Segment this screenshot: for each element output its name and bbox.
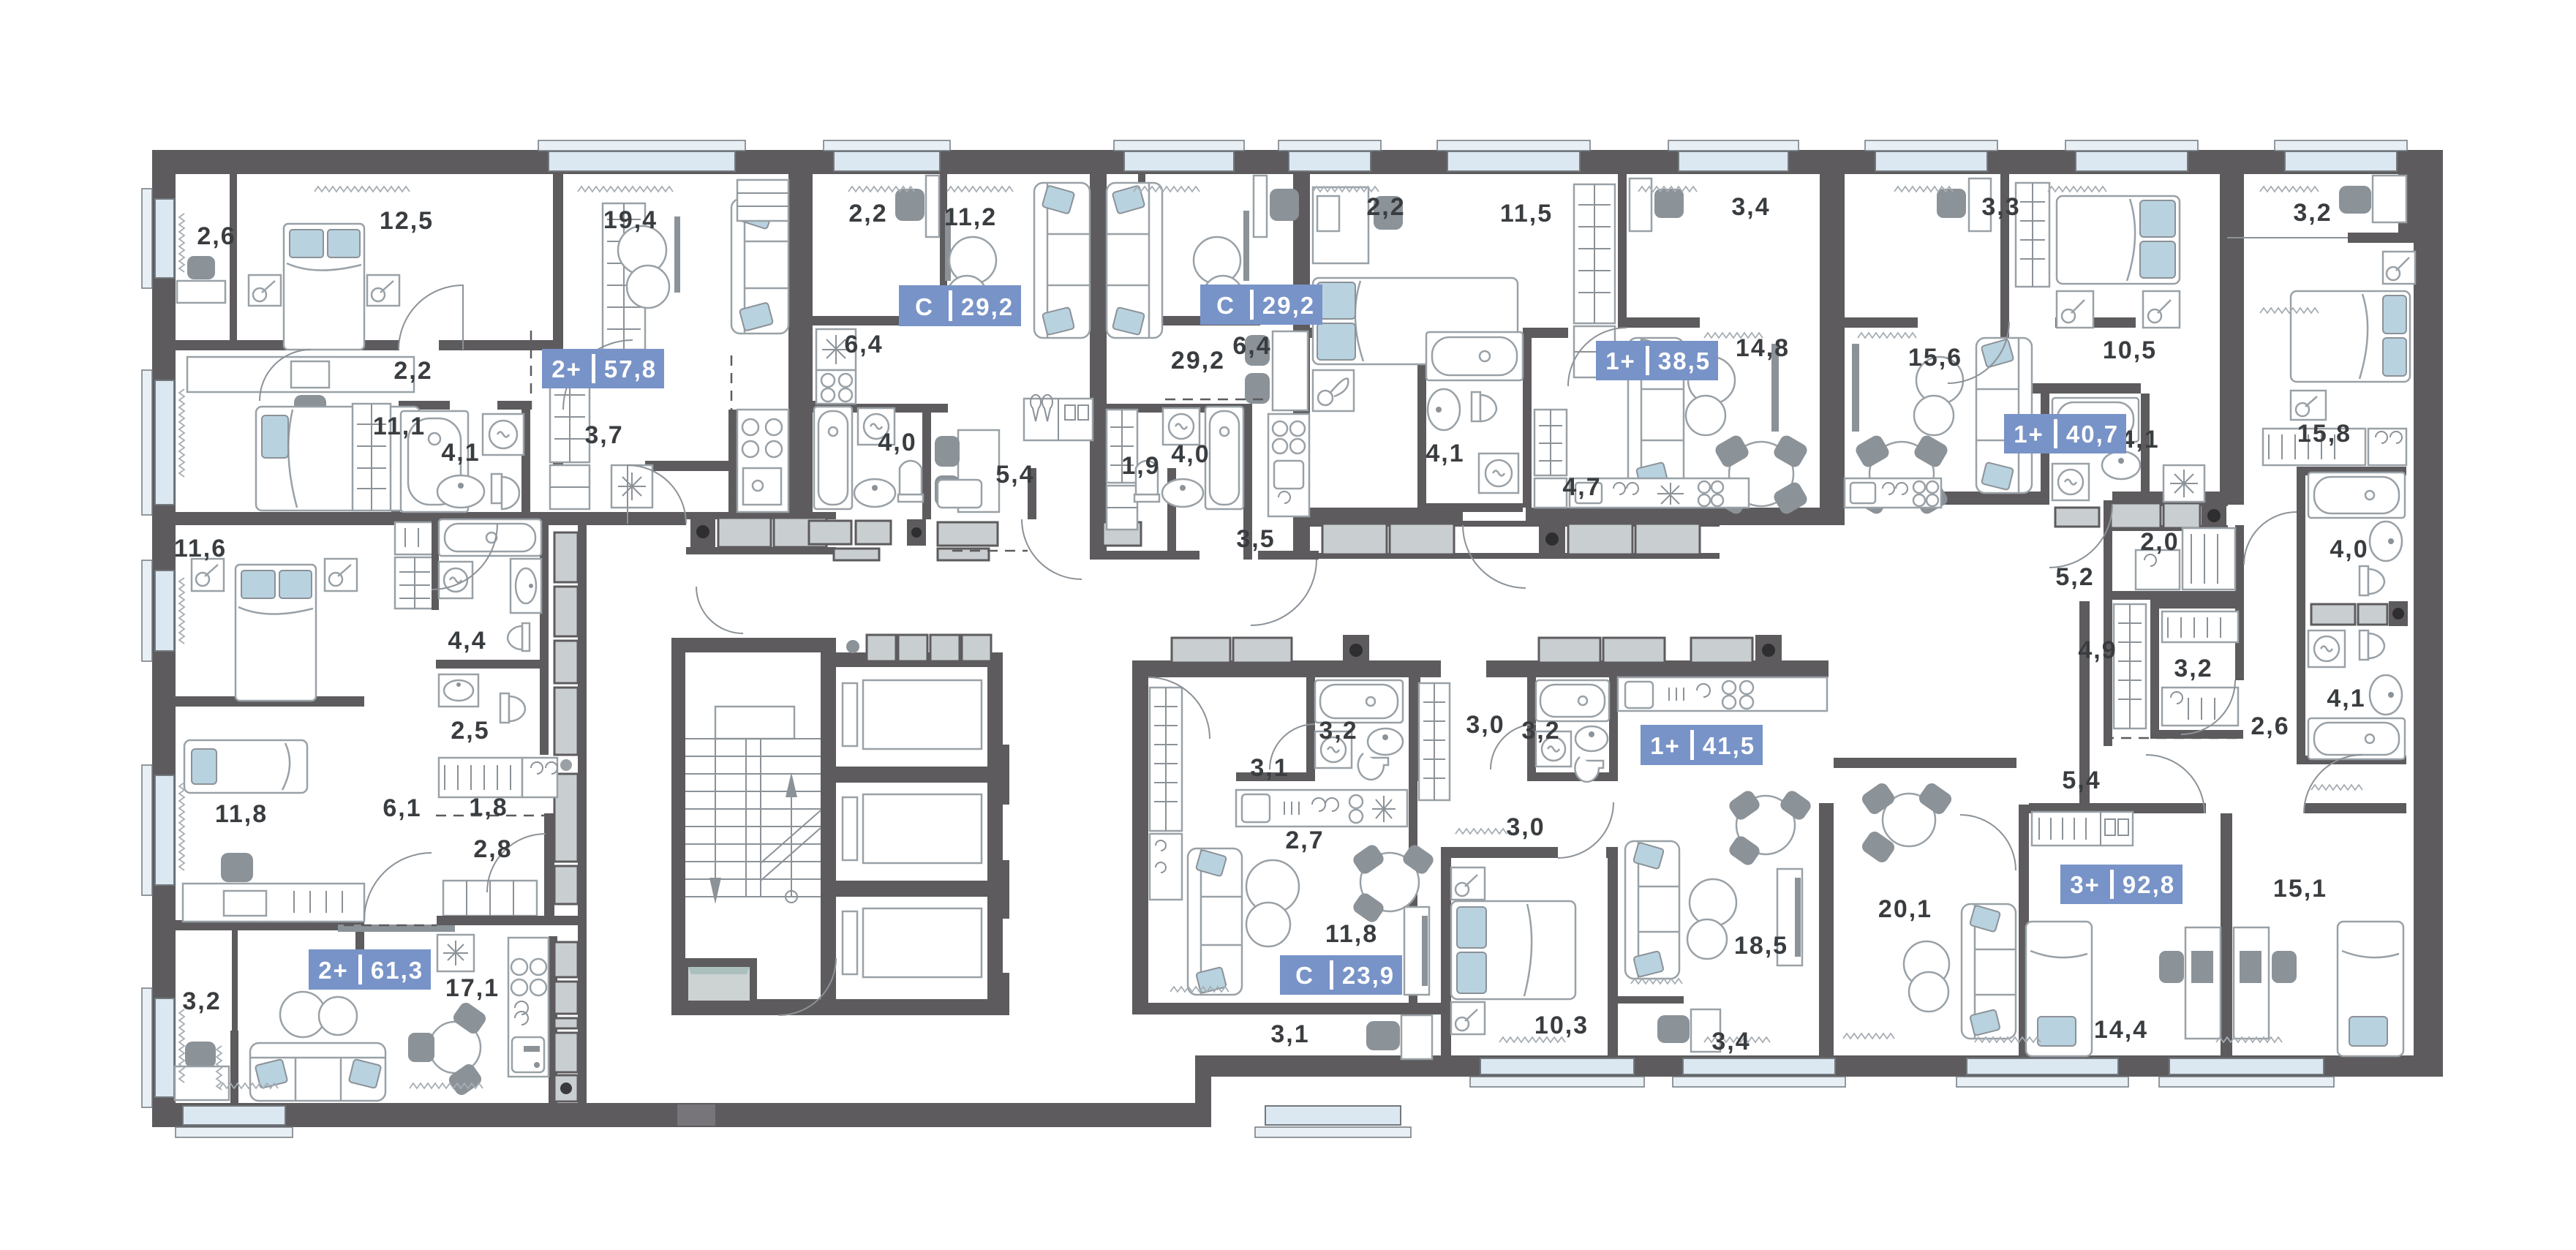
svg-text:3+: 3+ <box>2070 871 2101 898</box>
svg-text:11,2: 11,2 <box>944 203 997 231</box>
svg-text:2+: 2+ <box>318 957 349 984</box>
svg-text:40,7: 40,7 <box>2066 421 2119 448</box>
svg-text:15,8: 15,8 <box>2297 420 2351 448</box>
svg-text:1+: 1+ <box>1650 732 1681 759</box>
svg-text:2,8: 2,8 <box>473 835 512 863</box>
svg-text:4,0: 4,0 <box>2330 535 2368 563</box>
svg-text:20,1: 20,1 <box>1878 895 1932 923</box>
svg-text:3,2: 3,2 <box>182 987 221 1015</box>
svg-text:2,7: 2,7 <box>1285 827 1324 854</box>
svg-text:12,5: 12,5 <box>380 207 434 235</box>
svg-text:3,2: 3,2 <box>2293 199 2332 227</box>
svg-text:С: С <box>1216 292 1235 319</box>
svg-text:3,2: 3,2 <box>1319 717 1357 745</box>
svg-text:11,8: 11,8 <box>215 800 268 828</box>
svg-text:19,4: 19,4 <box>603 206 658 234</box>
svg-text:4,7: 4,7 <box>1562 473 1601 501</box>
svg-text:2,5: 2,5 <box>451 717 489 745</box>
svg-text:3,2: 3,2 <box>2174 655 2212 682</box>
svg-text:11,8: 11,8 <box>1325 920 1378 948</box>
svg-text:57,8: 57,8 <box>604 355 657 383</box>
svg-text:2,2: 2,2 <box>1366 193 1405 221</box>
svg-text:6,4: 6,4 <box>1232 332 1271 360</box>
svg-text:3,4: 3,4 <box>1731 193 1770 221</box>
svg-text:4,1: 4,1 <box>441 439 480 467</box>
svg-text:1,9: 1,9 <box>1121 452 1160 480</box>
svg-text:3,4: 3,4 <box>1711 1028 1750 1055</box>
svg-text:3,1: 3,1 <box>1270 1020 1309 1048</box>
svg-text:11,1: 11,1 <box>373 413 426 440</box>
svg-text:10,5: 10,5 <box>2103 336 2157 364</box>
svg-text:5,4: 5,4 <box>995 461 1034 489</box>
svg-text:2,6: 2,6 <box>197 222 236 250</box>
svg-text:2,2: 2,2 <box>848 200 887 227</box>
svg-text:4,1: 4,1 <box>2120 426 2159 453</box>
svg-text:2,6: 2,6 <box>2251 712 2289 740</box>
svg-text:29,2: 29,2 <box>1171 347 1225 374</box>
svg-text:1+: 1+ <box>1605 347 1636 374</box>
svg-text:1,8: 1,8 <box>469 794 508 821</box>
svg-text:4,9: 4,9 <box>2078 636 2117 664</box>
svg-text:5,4: 5,4 <box>2062 767 2101 794</box>
svg-text:15,1: 15,1 <box>2273 875 2327 903</box>
svg-text:3,0: 3,0 <box>1506 813 1545 841</box>
svg-text:2,2: 2,2 <box>393 357 432 385</box>
svg-text:18,5: 18,5 <box>1734 932 1788 960</box>
svg-text:14,8: 14,8 <box>1736 334 1790 362</box>
svg-text:3,3: 3,3 <box>1981 193 2020 221</box>
svg-text:3,7: 3,7 <box>584 421 623 449</box>
svg-text:29,2: 29,2 <box>1262 292 1315 319</box>
svg-text:С: С <box>915 293 934 320</box>
svg-text:4,1: 4,1 <box>1426 440 1464 467</box>
svg-text:4,0: 4,0 <box>1171 440 1210 468</box>
svg-text:4,0: 4,0 <box>878 429 916 456</box>
svg-text:61,3: 61,3 <box>371 957 423 984</box>
svg-text:6,4: 6,4 <box>844 331 883 358</box>
svg-text:11,5: 11,5 <box>1500 200 1553 227</box>
svg-text:6,1: 6,1 <box>383 794 421 822</box>
svg-text:5,2: 5,2 <box>2055 563 2094 591</box>
svg-text:С: С <box>1295 962 1314 989</box>
svg-text:4,1: 4,1 <box>2327 685 2365 712</box>
svg-text:23,9: 23,9 <box>1342 962 1395 989</box>
svg-text:2,0: 2,0 <box>2140 528 2179 556</box>
svg-text:2+: 2+ <box>551 355 582 383</box>
svg-text:11,6: 11,6 <box>174 535 227 562</box>
svg-text:3,0: 3,0 <box>1466 711 1504 739</box>
svg-text:3,1: 3,1 <box>1250 754 1289 782</box>
svg-text:41,5: 41,5 <box>1703 732 1755 759</box>
svg-text:29,2: 29,2 <box>961 293 1014 320</box>
svg-text:92,8: 92,8 <box>2123 871 2175 898</box>
svg-text:1+: 1+ <box>2014 421 2044 448</box>
svg-text:4,4: 4,4 <box>448 627 486 655</box>
svg-text:38,5: 38,5 <box>1658 347 1711 374</box>
svg-text:17,1: 17,1 <box>445 974 500 1002</box>
svg-text:15,6: 15,6 <box>1908 344 1962 372</box>
svg-text:3,5: 3,5 <box>1236 525 1275 553</box>
svg-text:10,3: 10,3 <box>1534 1012 1589 1039</box>
svg-text:14,4: 14,4 <box>2094 1016 2148 1044</box>
svg-text:3,2: 3,2 <box>1521 717 1560 745</box>
